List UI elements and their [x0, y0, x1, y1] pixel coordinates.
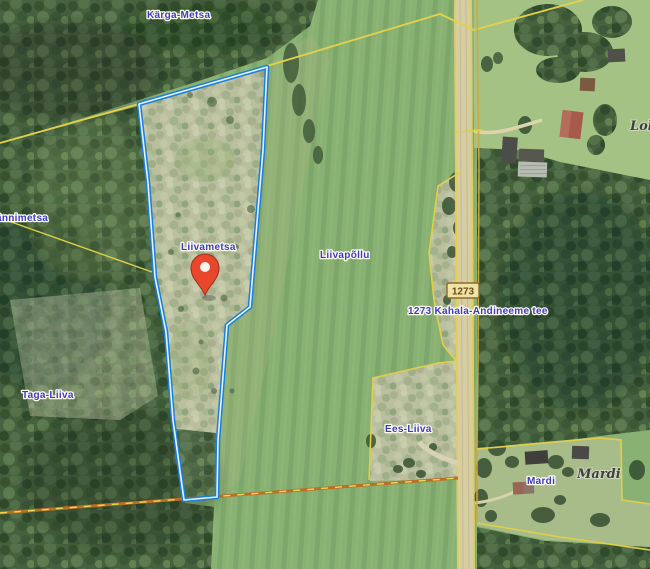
building-shed	[519, 149, 544, 162]
building-shed	[501, 137, 518, 164]
pin-shadow	[202, 295, 216, 301]
parcel-grass-patch	[175, 138, 235, 182]
satellite-map[interactable]: 1273 Kärga-Metsa ännimetsa Liivametsa Li…	[0, 0, 650, 569]
map-label-liivametsa: Liivametsa	[181, 242, 236, 253]
pin-hole	[200, 262, 210, 272]
map-label-ees-liiva: Ees-Liiva	[385, 424, 432, 435]
map-label-lok-partial: Lok	[629, 119, 650, 134]
map-label-mardi-place: Mardi	[527, 476, 555, 487]
building-shed	[580, 78, 596, 92]
road-number-text: 1273	[452, 287, 475, 298]
map-viewport[interactable]: 1273 Kärga-Metsa ännimetsa Liivametsa Li…	[0, 0, 650, 569]
map-label-karga-metsa: Kärga-Metsa	[147, 10, 210, 21]
map-label-mardi-parcel: Mardi	[576, 467, 621, 482]
map-label-road-name: 1273 Kahala-Andineeme tee	[408, 306, 548, 317]
building-mardi-shed	[572, 446, 589, 460]
map-label-liivapollu: Liivapõllu	[320, 250, 370, 261]
building-mardi-shed	[525, 450, 549, 465]
building-shed	[608, 49, 626, 63]
map-label-annimetsa: ännimetsa	[0, 213, 48, 224]
parcel-grass-patch	[168, 320, 212, 400]
map-label-taga-liiva: Taga-Liiva	[22, 390, 74, 401]
road-number-badge: 1273	[447, 283, 479, 298]
